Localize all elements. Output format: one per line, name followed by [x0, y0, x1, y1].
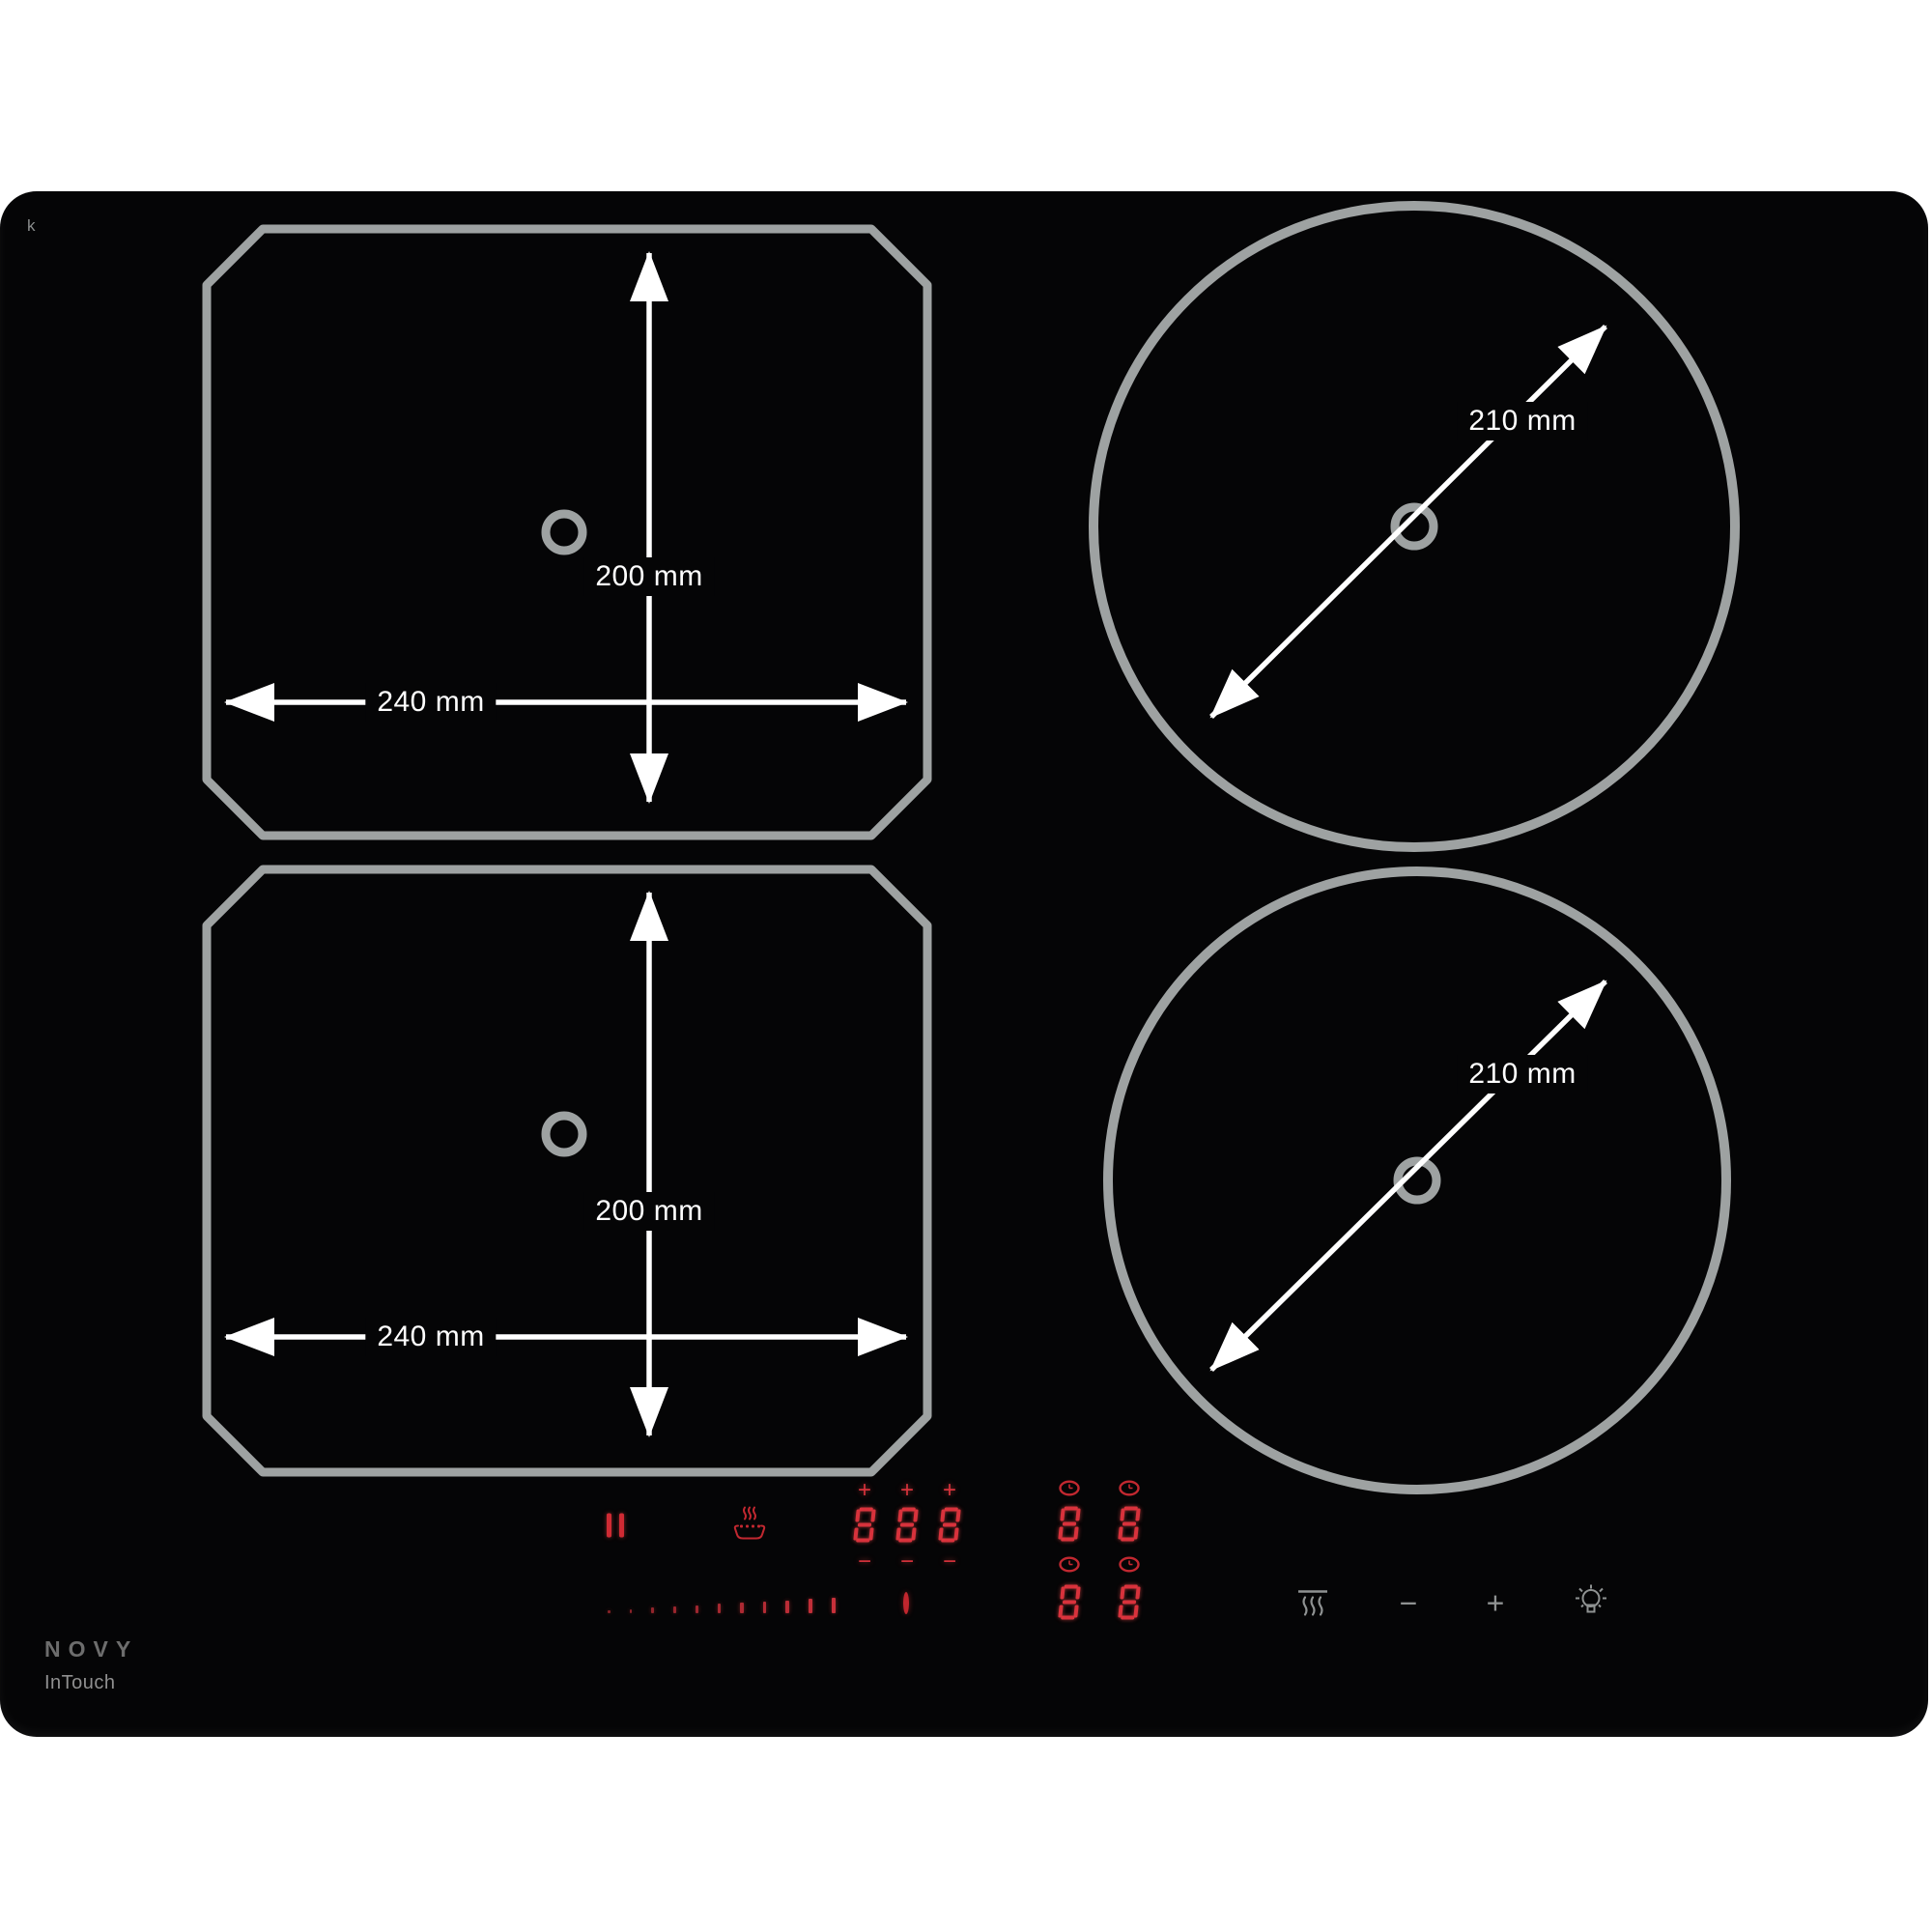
timer-clock-icon	[1117, 1480, 1142, 1497]
zone-minus-key[interactable]: −	[858, 1550, 871, 1574]
vent-icon	[1294, 1588, 1331, 1619]
power-slider-tick[interactable]	[718, 1604, 721, 1613]
power-slider-tick[interactable]	[785, 1601, 789, 1613]
timer-digit	[1118, 1585, 1141, 1620]
timer-key[interactable]	[1057, 1480, 1082, 1502]
power-slider-tick[interactable]	[740, 1603, 743, 1613]
timer-key[interactable]	[1057, 1556, 1082, 1578]
zone-minus-key[interactable]: −	[943, 1550, 956, 1574]
timer-key[interactable]	[1117, 1480, 1142, 1502]
standby-button[interactable]	[903, 1595, 909, 1612]
zone-minus-key[interactable]: −	[900, 1550, 914, 1574]
width-label-bottom-left: 240 mm	[365, 1318, 496, 1356]
power-slider-tick[interactable]	[809, 1599, 812, 1613]
power-slider-tick[interactable]	[651, 1607, 654, 1613]
standby-icon	[903, 1592, 909, 1614]
width-label-top-left: 240 mm	[365, 683, 496, 722]
brand-logo: NOVY	[44, 1636, 138, 1662]
power-slider-tick[interactable]	[673, 1606, 676, 1613]
power-slider[interactable]	[608, 1594, 855, 1613]
zone-plus-key[interactable]: +	[858, 1479, 871, 1502]
height-label-top-left: 200 mm	[583, 557, 714, 596]
cooktop-glass-panel	[0, 191, 1928, 1737]
timer-digit	[1058, 1585, 1081, 1620]
power-slider-tick[interactable]	[763, 1602, 767, 1613]
corner-watermark: k	[27, 216, 36, 236]
zone-plus-key[interactable]: +	[900, 1479, 914, 1502]
power-slider-tick[interactable]	[630, 1609, 633, 1613]
hood-light-button[interactable]	[1570, 1580, 1612, 1628]
keep-warm-icon	[729, 1505, 770, 1544]
zone-plus-key[interactable]: +	[943, 1479, 956, 1502]
timer-digit	[1118, 1507, 1141, 1542]
hood-vent-button[interactable]	[1294, 1588, 1331, 1624]
diameter-label-top-right: 210 mm	[1457, 402, 1587, 440]
timer-key[interactable]	[1117, 1556, 1142, 1578]
power-slider-tick[interactable]	[608, 1610, 611, 1613]
height-label-bottom-left: 200 mm	[583, 1192, 714, 1231]
timer-clock-icon	[1057, 1556, 1082, 1574]
timer-clock-icon	[1057, 1480, 1082, 1497]
power-level-digit	[853, 1508, 876, 1543]
power-slider-tick[interactable]	[832, 1598, 836, 1613]
product-line: InTouch	[44, 1672, 138, 1694]
power-slider-tick[interactable]	[696, 1605, 698, 1613]
pause-button[interactable]	[607, 1514, 624, 1538]
timer-digit	[1058, 1507, 1081, 1542]
power-level-digit	[895, 1508, 919, 1543]
pause-icon	[607, 1514, 624, 1538]
power-level-digit	[938, 1508, 961, 1543]
timer-clock-icon	[1117, 1556, 1142, 1574]
hood-minus-button[interactable]: −	[1400, 1586, 1418, 1622]
keep-warm-button[interactable]	[729, 1505, 770, 1548]
hood-plus-button[interactable]: +	[1487, 1586, 1505, 1622]
diameter-label-bottom-right: 210 mm	[1457, 1055, 1587, 1094]
light-icon	[1570, 1580, 1612, 1623]
